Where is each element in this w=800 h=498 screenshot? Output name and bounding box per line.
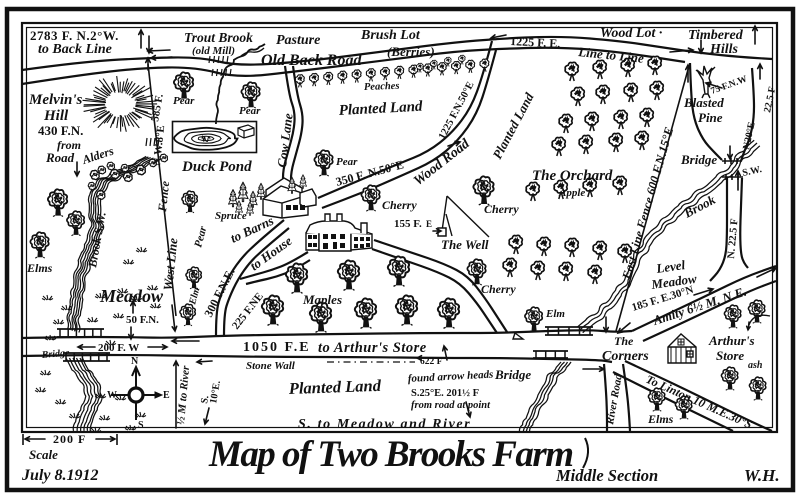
- svg-text:S. to Meadow and River: S. to Meadow and River: [298, 417, 471, 432]
- svg-text:1225 F. E.: 1225 F. E.: [510, 34, 561, 51]
- svg-text:S.25°E. 201½ F: S.25°E. 201½ F: [411, 388, 479, 399]
- svg-text:Pear: Pear: [173, 95, 195, 107]
- svg-text:Pine: Pine: [698, 110, 723, 125]
- svg-text:E: E: [426, 219, 432, 229]
- svg-text:W.H.: W.H.: [744, 466, 780, 485]
- svg-text:S: S: [138, 420, 144, 431]
- svg-text:Pasture: Pasture: [276, 33, 320, 48]
- svg-text:Elms: Elms: [647, 412, 674, 426]
- svg-text:to Back Line: to Back Line: [38, 42, 112, 57]
- svg-text:Cherry: Cherry: [484, 202, 519, 216]
- svg-text:Stone Wall: Stone Wall: [246, 360, 296, 372]
- svg-text:(Berries): (Berries): [387, 44, 435, 59]
- svg-text:Wood Lot ·: Wood Lot ·: [600, 26, 662, 41]
- svg-text:Middle Section: Middle Section: [555, 466, 658, 485]
- svg-text:Meadow: Meadow: [99, 286, 164, 306]
- svg-text:Pear: Pear: [336, 156, 358, 168]
- svg-text:July 8.1912: July 8.1912: [21, 467, 98, 484]
- svg-text:The: The: [614, 334, 634, 348]
- svg-text:E: E: [163, 390, 170, 401]
- svg-text:Timbered: Timbered: [688, 28, 744, 43]
- svg-text:Trout Brook: Trout Brook: [184, 30, 253, 45]
- svg-text:The Orchard: The Orchard: [532, 168, 613, 184]
- svg-text:Hills: Hills: [709, 42, 739, 57]
- svg-text:The Well: The Well: [441, 237, 489, 252]
- svg-text:Corners: Corners: [602, 349, 649, 364]
- svg-text:to Arthur's Store: to Arthur's Store: [318, 340, 427, 356]
- svg-text:Old Back Road: Old Back Road: [261, 52, 362, 69]
- svg-text:50 F.N.: 50 F.N.: [126, 314, 159, 326]
- svg-text:200 F: 200 F: [53, 432, 86, 446]
- svg-text:Pear: Pear: [239, 105, 261, 117]
- svg-text:Peaches: Peaches: [364, 81, 400, 93]
- svg-text:Elms: Elms: [26, 261, 53, 275]
- svg-text:200 F. W: 200 F. W: [98, 342, 139, 354]
- svg-text:N: N: [131, 356, 139, 367]
- svg-text:Maples: Maples: [302, 292, 342, 307]
- svg-text:622 F: 622 F: [420, 357, 443, 367]
- svg-text:W: W: [107, 390, 117, 401]
- svg-text:430 F.N.: 430 F.N.: [38, 123, 83, 138]
- svg-text:Blasted: Blasted: [683, 95, 724, 110]
- svg-text:Arthur's: Arthur's: [708, 333, 755, 348]
- svg-text:Hill: Hill: [43, 108, 69, 124]
- svg-text:Spruce: Spruce: [215, 210, 247, 222]
- svg-text:1050 F.E: 1050 F.E: [243, 340, 311, 355]
- svg-text:Map of Two Brooks Farm: Map of Two Brooks Farm: [208, 434, 575, 475]
- svg-text:Brush Lot: Brush Lot: [360, 28, 421, 43]
- svg-text:Cherry: Cherry: [382, 198, 417, 212]
- svg-text:155 F.: 155 F.: [394, 218, 422, 230]
- svg-text:from road at point: from road at point: [411, 400, 491, 411]
- svg-text:Melvin's: Melvin's: [28, 92, 82, 108]
- svg-text:Store: Store: [716, 348, 744, 363]
- svg-text:Apple: Apple: [558, 187, 585, 199]
- svg-text:Road: Road: [45, 150, 75, 165]
- svg-text:Bridge: Bridge: [494, 367, 531, 382]
- svg-text:Duck Pond: Duck Pond: [181, 159, 252, 175]
- svg-text:Planted Land: Planted Land: [287, 376, 381, 398]
- svg-text:(old Mill): (old Mill): [192, 45, 235, 57]
- svg-text:Scale: Scale: [29, 447, 58, 462]
- svg-text:Elm: Elm: [545, 308, 565, 320]
- svg-text:Bridge: Bridge: [680, 152, 717, 167]
- svg-text:ash: ash: [748, 360, 763, 371]
- svg-text:2783 F. N.2°W.: 2783 F. N.2°W.: [30, 28, 119, 43]
- svg-text:Cherry: Cherry: [481, 282, 516, 296]
